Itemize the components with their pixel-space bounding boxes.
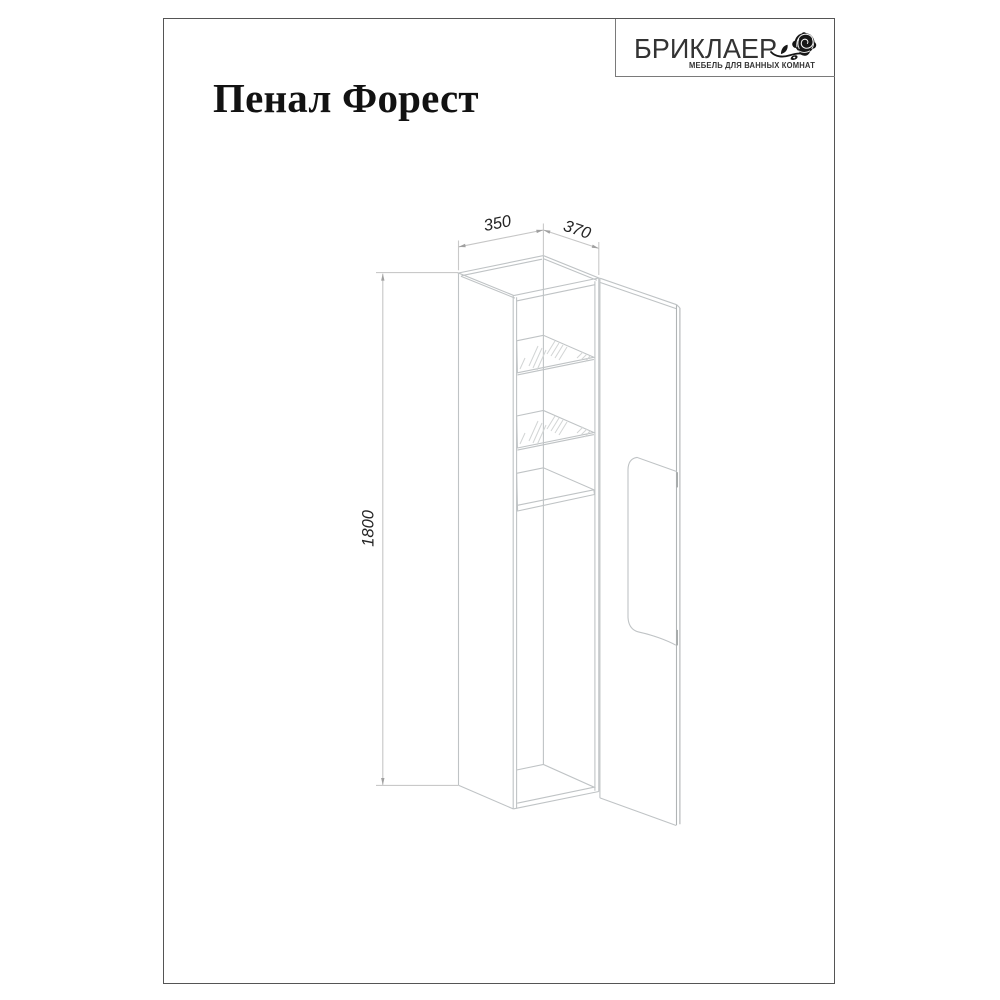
svg-text:1800: 1800 bbox=[360, 509, 378, 547]
svg-text:350: 350 bbox=[482, 212, 513, 235]
svg-text:370: 370 bbox=[561, 217, 594, 243]
